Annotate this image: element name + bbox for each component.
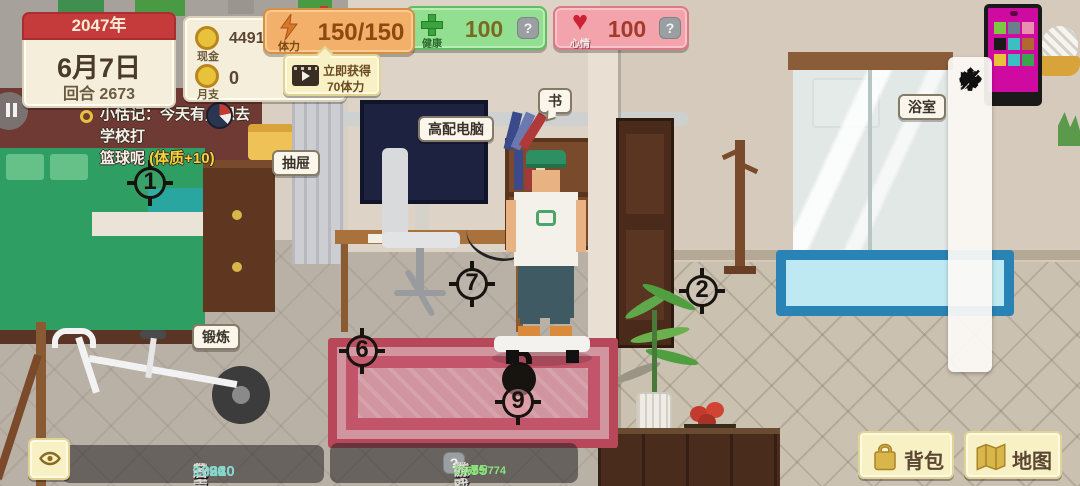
skateboard-wheel	[566, 350, 579, 363]
glass-door-frame-mid	[868, 70, 872, 254]
character-foot	[518, 326, 540, 336]
health-label: 健康	[410, 35, 454, 50]
character-leg	[550, 312, 570, 324]
mood-panel[interactable]: ♥ 心情 100 ?	[553, 6, 689, 50]
monthly-label: 月支	[191, 86, 225, 102]
bed-pillow	[6, 154, 44, 180]
hotspot-marker-2[interactable]: 2	[679, 268, 725, 314]
character[interactable]	[504, 150, 584, 346]
nightstand	[203, 160, 275, 312]
phone-app	[1022, 22, 1034, 34]
phone-app	[1008, 22, 1020, 34]
mood-heart-icon: ♥	[565, 6, 595, 37]
bike-handlebar	[52, 328, 96, 348]
shelf-pot	[228, 0, 254, 14]
label-exercise[interactable]: 锻炼	[192, 324, 240, 350]
date-panel-header: 2047年	[22, 12, 176, 40]
round-label: 回合 2673	[24, 80, 174, 104]
character-arm	[576, 200, 586, 252]
mood-help-button[interactable]: ?	[659, 17, 681, 39]
label-drawer[interactable]: 抽屉	[272, 150, 320, 176]
monitor-stand	[415, 204, 429, 232]
stamina-lightning-icon	[277, 14, 301, 40]
cash-label: 现金	[191, 48, 225, 64]
year-label: 2047年	[72, 16, 127, 35]
pause-bar	[13, 103, 17, 117]
phone-app	[994, 38, 1006, 50]
stamina-panel[interactable]: 体力 150/150	[263, 8, 415, 54]
coat-rack-base	[724, 266, 756, 274]
character-head	[532, 170, 560, 192]
map-label: 地图	[1012, 445, 1052, 474]
health-help-button[interactable]: ?	[517, 17, 539, 39]
character-arm	[506, 200, 516, 252]
phone-app	[1022, 54, 1034, 66]
quest-ring-icon	[80, 110, 93, 123]
video-ad-icon	[292, 65, 319, 86]
health-panel[interactable]: 健康 100 ?	[405, 6, 547, 50]
coin-icon	[195, 64, 219, 88]
phone-app	[1008, 38, 1020, 50]
bed-sheet	[92, 212, 205, 236]
chair-back	[382, 148, 408, 240]
pause-bar	[6, 103, 10, 117]
play-glyph	[302, 71, 310, 81]
hotspot-marker-6[interactable]: 6	[339, 328, 385, 374]
date-panel[interactable]: 2047年 6月7日 回合 2673	[22, 12, 176, 108]
edit-toolbar: ▶ + − ×	[948, 57, 992, 372]
stamina-label: 体力	[269, 38, 309, 54]
film-perforation	[294, 67, 317, 70]
game-screen: 抽屉 高配电脑 书 浴室 锻炼 1 2 6 7 9 2047年 6月7日 回合 …	[0, 0, 1080, 486]
ad-line1: 立即获得	[323, 62, 381, 79]
phone-home-bar	[988, 92, 1038, 102]
character-pants	[518, 266, 574, 318]
backpack-button[interactable]: 背包	[858, 431, 954, 479]
health-cross-icon	[421, 14, 443, 36]
stamina-value: 150/150	[309, 19, 413, 47]
character-foot	[550, 326, 572, 336]
backpack-label: 背包	[904, 445, 944, 474]
backpack-icon	[870, 442, 900, 472]
chair-seat	[382, 232, 460, 248]
phone-app	[994, 22, 1006, 34]
character-hat	[526, 150, 566, 168]
bed-frame	[0, 330, 210, 344]
map-icon	[976, 443, 1006, 471]
stats-bar-left: 体质1190 想象16210 脑力93340 魅力50 名声1662	[62, 445, 324, 483]
mood-label: 心情	[558, 35, 602, 50]
cabinet	[598, 428, 780, 486]
map-button[interactable]: 地图	[964, 431, 1062, 479]
glass-door-frame-top	[788, 52, 953, 70]
label-computer[interactable]: 高配电脑	[418, 116, 494, 142]
notification-bonus: (体质+10)	[149, 150, 214, 167]
coin-icon	[195, 26, 219, 50]
phone-app	[1022, 38, 1034, 50]
hotspot-marker-7[interactable]: 7	[449, 261, 495, 307]
phone[interactable]	[984, 4, 1042, 106]
coat-rack	[735, 140, 745, 272]
eye-icon	[38, 449, 62, 471]
phone-app	[1008, 54, 1020, 66]
phone-camera	[1010, 11, 1018, 16]
nightstand-knob	[232, 262, 242, 272]
character-leg	[520, 312, 540, 324]
bed-pillow	[50, 154, 88, 180]
toggle-stats-eye-button[interactable]	[28, 438, 70, 480]
door-panel	[626, 134, 664, 214]
hotspot-marker-9[interactable]: 9	[495, 379, 541, 425]
nightstand-knob	[232, 210, 242, 220]
character-shirt-print	[536, 210, 556, 226]
health-value: 100	[455, 16, 513, 43]
cross-h	[421, 21, 443, 29]
stats-bar-right: 美术2875 行政12 农才365 游戏25609/774 ?	[330, 443, 578, 483]
label-bathroom[interactable]: 浴室	[898, 94, 946, 120]
ad-line2: 70体力	[327, 78, 385, 95]
desk-leg	[341, 244, 348, 332]
mood-value: 100	[599, 16, 655, 43]
skateboard-wheel	[506, 350, 519, 363]
close-button[interactable]: ×	[948, 57, 992, 102]
character-shirt	[514, 192, 578, 266]
notification-line2: 篮球呢	[100, 150, 149, 167]
phone-app	[994, 54, 1006, 66]
monthly-value: 0	[229, 68, 289, 89]
plant-stem	[652, 310, 657, 398]
bike-wheel-hub	[232, 386, 250, 404]
stat-pie-icon[interactable]	[206, 102, 233, 129]
stamina-ad-button[interactable]: 立即获得 70体力	[283, 54, 381, 96]
